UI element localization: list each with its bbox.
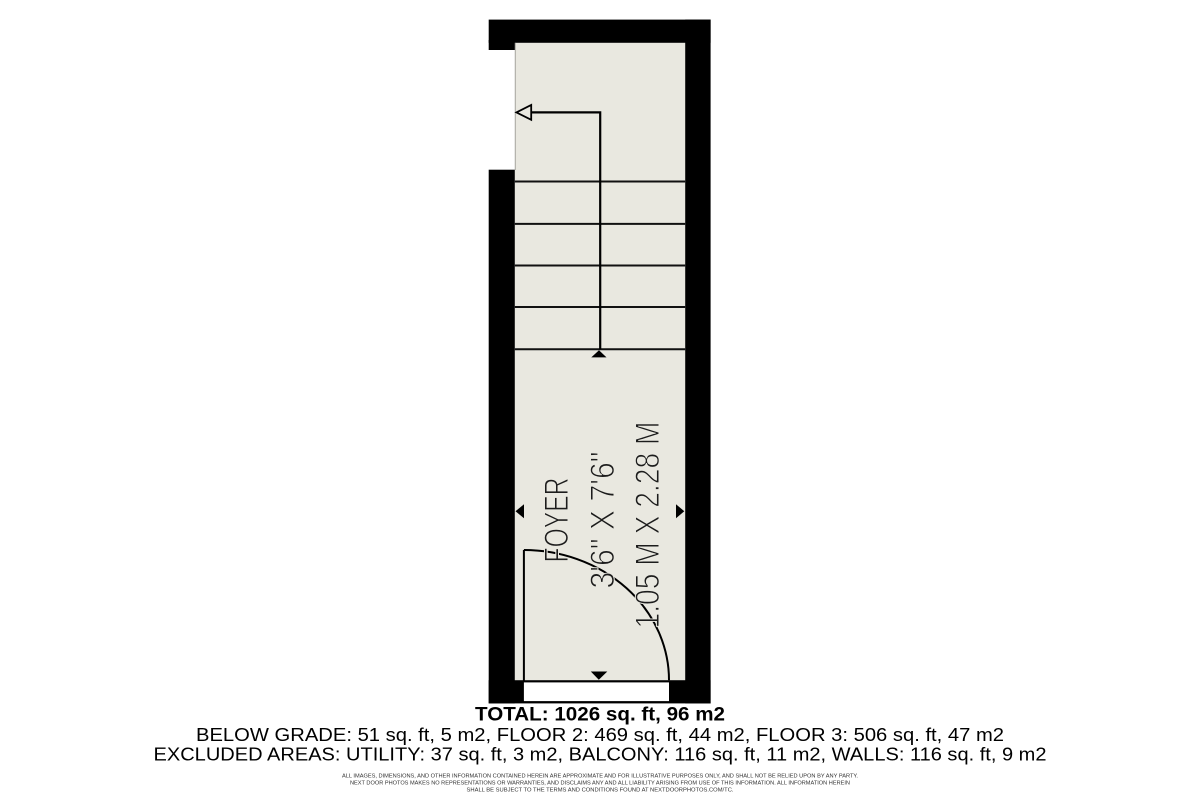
svg-text:SHALL BE SUBJECT TO THE TERMS: SHALL BE SUBJECT TO THE TERMS AND CONDIT…	[467, 787, 734, 793]
svg-text:NEXT DOOR PHOTOS MAKES NO REPR: NEXT DOOR PHOTOS MAKES NO REPRESENTATION…	[350, 781, 850, 787]
svg-text:1.05 M X 2.28 M: 1.05 M X 2.28 M	[629, 422, 667, 629]
svg-text:FOYER: FOYER	[538, 478, 576, 563]
svg-text:3'6" X 7'6": 3'6" X 7'6"	[584, 452, 622, 589]
svg-text:BELOW GRADE: 51 sq. ft, 5 m2,: BELOW GRADE: 51 sq. ft, 5 m2, FLOOR 2: 4…	[196, 725, 1004, 745]
svg-text:ALL IMAGES, DIMENSIONS, AND OT: ALL IMAGES, DIMENSIONS, AND OTHER INFORM…	[342, 774, 858, 780]
svg-text:EXCLUDED AREAS: UTILITY: 37 sq: EXCLUDED AREAS: UTILITY: 37 sq. ft, 3 m2…	[154, 744, 1047, 764]
svg-text:TOTAL: 1026 sq. ft, 96 m2: TOTAL: 1026 sq. ft, 96 m2	[475, 704, 725, 725]
